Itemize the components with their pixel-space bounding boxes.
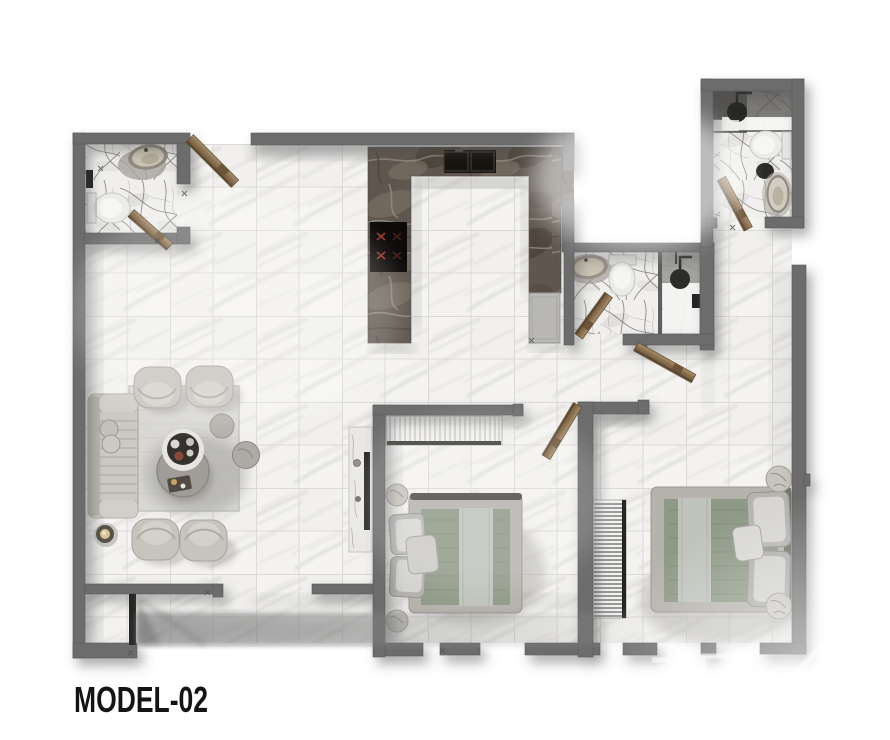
svg-text:MODEL-02: MODEL-02 bbox=[74, 679, 208, 720]
